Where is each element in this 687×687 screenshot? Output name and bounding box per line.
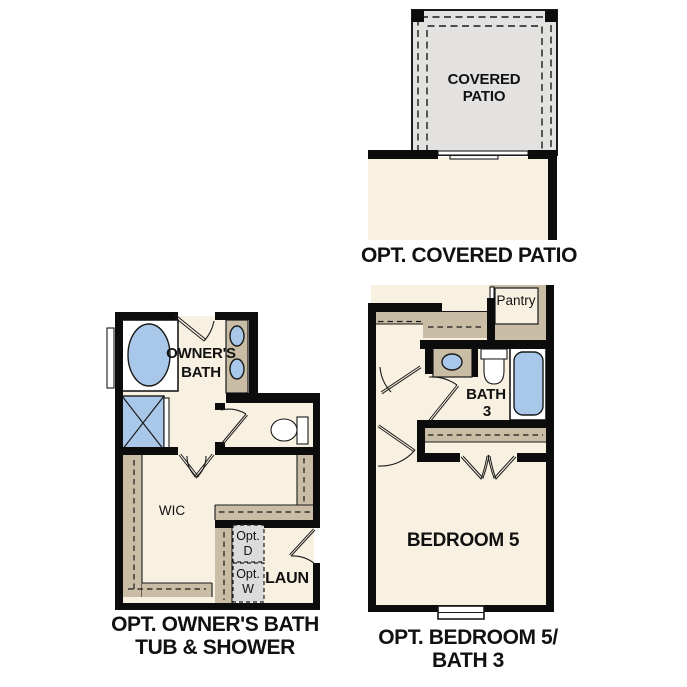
closet-shelf: [423, 312, 488, 338]
bedroom5-caption-line1: OPT. BEDROOM 5/: [358, 626, 578, 649]
room-label-bedroom5: BEDROOM 5: [407, 530, 520, 551]
room-label-pantry: Pantry: [496, 293, 535, 308]
wall: [226, 393, 320, 403]
house-interior: [368, 157, 553, 240]
label-opt-washer: Opt.: [236, 567, 260, 581]
bedroom5-bath3-caption: OPT. BEDROOM 5/ BATH 3: [358, 626, 578, 672]
wall: [249, 312, 258, 396]
wall: [487, 298, 495, 342]
wall: [368, 150, 438, 159]
room-label-wic: WIC: [159, 503, 185, 518]
room-label-covered-patio: PATIO: [463, 88, 506, 105]
toilet-bowl: [484, 359, 504, 384]
sliding-door-panel: [438, 151, 528, 155]
wall: [115, 312, 178, 320]
pantry-door-leaf: [490, 287, 494, 299]
sink: [230, 359, 244, 379]
closet-shelf: [297, 455, 313, 505]
wall: [313, 455, 320, 528]
wall: [546, 285, 554, 612]
label-opt-dryer: D: [243, 544, 252, 558]
sink: [230, 326, 244, 346]
toilet-tank: [297, 417, 308, 444]
wall: [215, 447, 320, 455]
bathtub: [514, 352, 543, 415]
bathtub: [128, 324, 170, 386]
wall: [215, 403, 225, 410]
wall: [417, 420, 554, 428]
room-label-owners-bath: BATH: [181, 364, 221, 381]
wall: [417, 420, 425, 457]
patio-post: [545, 10, 557, 22]
covered-patio-plan: COVERED PATIO: [360, 0, 580, 245]
label-opt-dryer: Opt.: [236, 529, 260, 543]
wall: [313, 396, 320, 455]
owners-bath-caption-line1: OPT. OWNER'S BATH: [102, 613, 328, 636]
bedroom5-bath3-plan: Pantry BATH 3 BEDROOM 5: [360, 280, 570, 625]
toilet-bowl: [271, 419, 297, 441]
wall: [472, 348, 478, 377]
wall: [417, 453, 460, 462]
toilet-tank: [481, 349, 507, 359]
room-label-bath3: BATH: [466, 386, 506, 403]
window: [107, 328, 114, 388]
shower-door: [164, 398, 169, 448]
wall: [368, 303, 376, 612]
owners-bath-plan: OWNER'S BATH WIC LAUN Opt. D Opt. W: [100, 295, 330, 620]
room-label-owners-bath: OWNER'S: [166, 345, 236, 362]
sliding-door-panel: [450, 156, 498, 160]
wall: [368, 303, 442, 312]
closet-shelf: [123, 455, 142, 597]
room-label-laundry: LAUN: [265, 570, 309, 587]
wall: [313, 563, 320, 610]
closet-shelf: [142, 583, 212, 597]
floorplan-sheet: COVERED PATIO OPT. COVERED PATIO: [0, 0, 687, 687]
owners-bath-caption-line2: TUB & SHOWER: [102, 636, 328, 659]
label-opt-washer: W: [242, 582, 254, 596]
room-label-covered-patio: COVERED: [448, 71, 521, 88]
wall: [115, 447, 178, 455]
owners-bath-caption: OPT. OWNER'S BATH TUB & SHOWER: [102, 613, 328, 659]
covered-patio-caption: OPT. COVERED PATIO: [358, 244, 580, 267]
patio-post: [412, 10, 424, 22]
wall: [115, 312, 123, 610]
room-label-bath3: 3: [483, 403, 491, 420]
wall: [548, 150, 557, 240]
bedroom5-caption-line2: BATH 3: [358, 649, 578, 672]
wall: [425, 340, 433, 374]
wall: [420, 340, 554, 349]
wall: [115, 603, 320, 610]
sink: [442, 354, 462, 370]
